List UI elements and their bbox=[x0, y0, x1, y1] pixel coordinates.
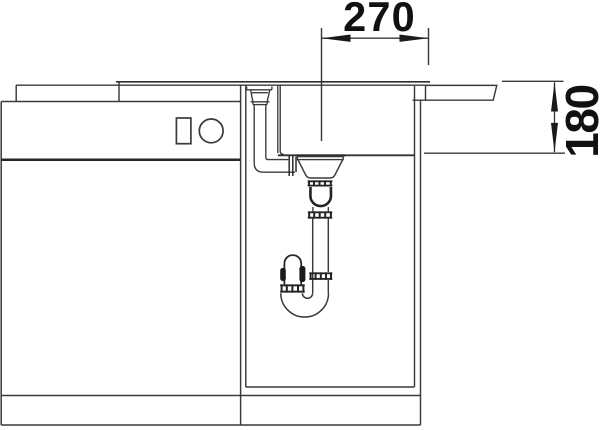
svg-text:180: 180 bbox=[556, 85, 600, 157]
svg-text:270: 270 bbox=[343, 0, 416, 40]
